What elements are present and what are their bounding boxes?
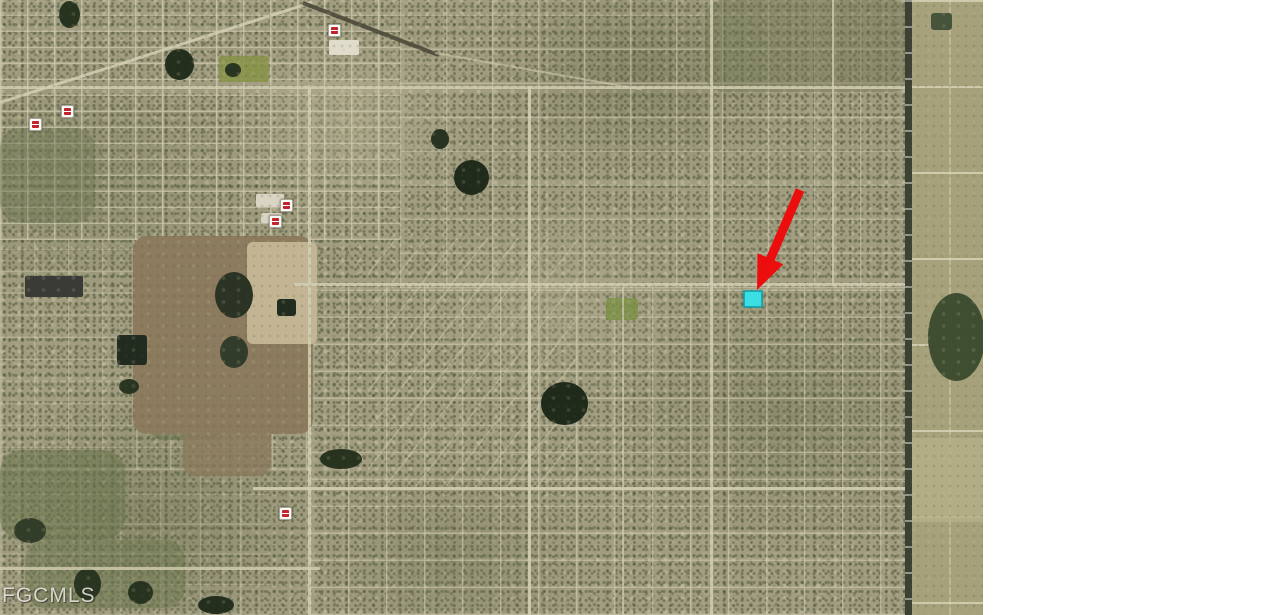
aerial-map: FGCMLS — [0, 0, 983, 615]
right-whitespace-panel — [983, 0, 1276, 615]
pointer-arrow-shaft — [769, 190, 800, 262]
listing-map-screenshot: FGCMLS — [0, 0, 1276, 615]
mls-watermark: FGCMLS — [2, 584, 96, 608]
subject-parcel-marker — [744, 291, 762, 307]
annotation-overlay — [0, 0, 983, 615]
pointer-arrow-head — [757, 253, 783, 290]
